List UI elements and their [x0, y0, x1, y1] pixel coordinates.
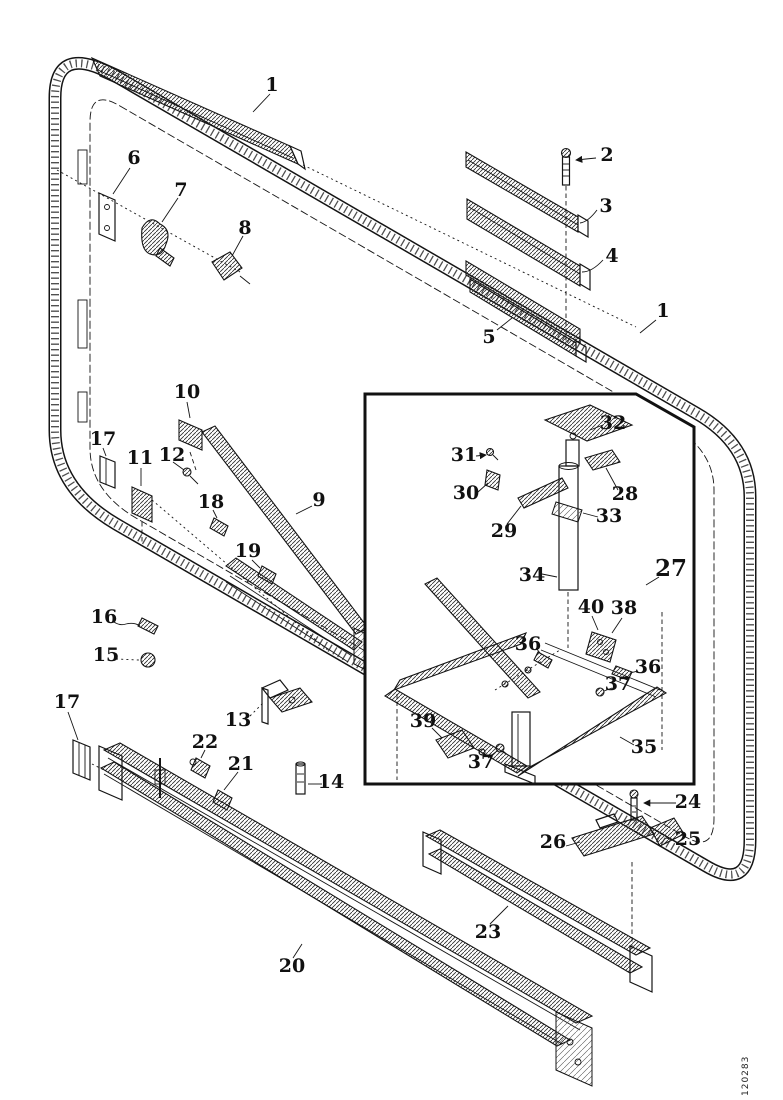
part-15-nut [116, 653, 155, 667]
part-8-bracket [212, 236, 250, 284]
part-17-upper-bracket [100, 448, 115, 488]
part-26-bracket [566, 814, 654, 856]
callout-part-36: 36 [635, 656, 661, 678]
callout-part-39: 39 [410, 710, 436, 732]
callout-part-33: 33 [596, 505, 622, 527]
callout-part-7: 7 [174, 179, 187, 201]
callout-part-13: 13 [225, 709, 251, 731]
callout-part-11: 11 [127, 447, 153, 469]
callout-part-28: 28 [612, 483, 638, 505]
callout-part-9: 9 [312, 489, 325, 511]
callout-part-21: 21 [228, 753, 254, 775]
part-16-screw [114, 618, 158, 634]
callout-part-23: 23 [475, 921, 501, 943]
part-7-latch [142, 198, 178, 266]
callout-part-6: 6 [127, 147, 140, 169]
part-18-screw [210, 510, 228, 536]
callout-part-18: 18 [198, 491, 224, 513]
callout-part-16: 16 [91, 606, 117, 628]
callout-part-34: 34 [519, 564, 545, 586]
part-13-hinge [250, 680, 312, 724]
part-2-bolt [562, 149, 597, 347]
callout-part-37: 37 [605, 673, 631, 695]
callout-part-12: 12 [159, 444, 185, 466]
callout-part-4: 4 [605, 245, 618, 267]
callout-part-38: 38 [611, 597, 637, 619]
callout-part-25: 25 [675, 828, 701, 850]
callout-part-36: 36 [515, 633, 541, 655]
callout-part-31: 31 [451, 444, 477, 466]
callout-part-24: 24 [675, 791, 701, 813]
callout-part-37: 37 [468, 751, 494, 773]
diagram-canvas: 1234516781017111218919161517132221142023… [0, 0, 783, 1100]
callout-part-26: 26 [540, 831, 566, 853]
callout-part-17: 17 [90, 428, 116, 450]
callout-part-22: 22 [192, 731, 218, 753]
callout-part-2: 2 [600, 144, 613, 166]
part-20-bottom-rail [99, 743, 592, 1086]
callout-part-1: 1 [265, 74, 278, 96]
figure-code: 120283 [741, 1026, 755, 1096]
callout-part-14: 14 [318, 771, 344, 793]
callout-part-5: 5 [482, 326, 495, 348]
callout-part-3: 3 [599, 195, 612, 217]
callout-part-8: 8 [238, 217, 251, 239]
part-9-brace [202, 426, 370, 672]
callout-part-27: 27 [655, 555, 687, 582]
callout-part-17: 17 [54, 691, 80, 713]
callout-part-32: 32 [600, 412, 626, 434]
callout-part-40: 40 [578, 596, 604, 618]
callout-part-10: 10 [174, 381, 200, 403]
callout-part-15: 15 [93, 644, 119, 666]
part-22-bolt [190, 750, 210, 778]
callout-part-29: 29 [491, 520, 517, 542]
callout-part-19: 19 [235, 540, 261, 562]
part-23-rail [423, 830, 652, 992]
callout-part-20: 20 [279, 955, 305, 977]
exploded-diagram-svg: 1234516781017111218919161517132221142023… [0, 0, 783, 1100]
callout-part-1: 1 [656, 300, 669, 322]
callout-part-35: 35 [631, 736, 657, 758]
callout-part-30: 30 [453, 482, 479, 504]
part-24-bolt [630, 790, 676, 820]
